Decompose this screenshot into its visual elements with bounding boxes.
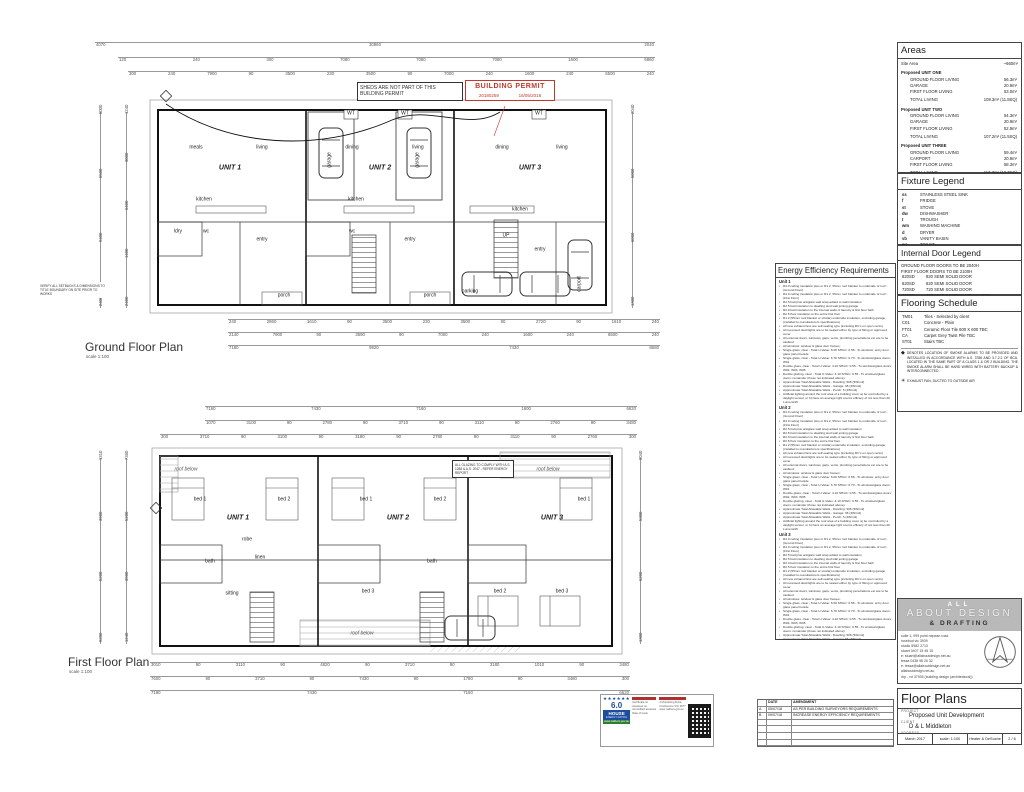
brand-line3: & DRAFTING bbox=[898, 620, 1021, 627]
energy-rating-certificate: ★★★★★★ 6.0 HOUSE ENERGY RATING www.nathe… bbox=[600, 694, 714, 747]
unit-three-rows: GROUND FLOOR LIVING59.4m²CARPORT20.9m²FI… bbox=[901, 150, 1018, 169]
first-dims-right: 3040530062001300 bbox=[640, 458, 641, 644]
building-permit-title: BUILDING PERMIT bbox=[469, 83, 551, 91]
table-row: FIRST FLOOR LIVING52.9m² bbox=[901, 126, 1018, 132]
areas-title: Areas bbox=[898, 43, 1021, 59]
list-item: Single glass, clear - Total U-Value: 6.7… bbox=[779, 356, 892, 364]
list-item: R4.0 ceiling insulation plus or R1.2, 55… bbox=[779, 537, 892, 545]
ground-dims-left-1: 5000550094002400 bbox=[100, 112, 101, 308]
list-item: R4.0 ceiling insulation plus or R1.2, 55… bbox=[779, 419, 892, 427]
flooring-schedule-title: Flooring Schedule bbox=[898, 296, 1021, 312]
amend-col-desc: AMENDMENT bbox=[792, 700, 893, 706]
unit-one-total-label: TOTAL LIVING bbox=[909, 97, 939, 103]
brand-block: ALL ABOUT DESIGN & DRAFTING suite 1, 999… bbox=[897, 598, 1022, 684]
list-item: Single glass, clear - Total U-Value: 6.7… bbox=[779, 609, 892, 617]
amendment-table: DATE AMENDMENT A05/07/18AS PER BUILDING … bbox=[757, 699, 894, 747]
ground-dims-right: 2040500060001300 bbox=[632, 112, 633, 308]
list-item: All recessed downlights are to be sealed… bbox=[779, 455, 892, 463]
ground-dims-top-2: 12024030070807080708016006860 bbox=[118, 57, 655, 58]
cert-col1-header bbox=[632, 697, 656, 700]
table-row: FIRST FLOOR LIVING53.0m² bbox=[901, 89, 1018, 95]
list-item: Single glass, clear - Total U-Value: 6.7… bbox=[779, 483, 892, 491]
table-row bbox=[758, 726, 893, 733]
ground-dims-bottom-3: 7180992074308680 bbox=[228, 345, 660, 346]
first-dims-top-1: 71607430716016006620 bbox=[205, 406, 637, 407]
brand-band: ALL ABOUT DESIGN & DRAFTING bbox=[898, 599, 1021, 631]
building-permit-number: 20180259 bbox=[479, 93, 499, 98]
first-dims-bottom-3: 7180743071606620 bbox=[150, 690, 630, 691]
building-permit-date: 16/05/2018 bbox=[519, 93, 542, 98]
first-floor-plan-drawing bbox=[150, 448, 622, 654]
glazing-note: ALL GLAZING TO COMPLY WITH A.S. 1288 & A… bbox=[452, 460, 514, 478]
door-legend-panel: Internal Door Legend GROUND FLOOR DOORS … bbox=[897, 245, 1022, 295]
unit-one-rows: GROUND FLOOR LIVING56.3m²GARAGE20.9m²FIR… bbox=[901, 77, 1018, 96]
first-dims-top-2: 10703100902780903710903110902760903480 bbox=[205, 420, 637, 421]
list-item: Double glazing, clear - Total U-Value: 4… bbox=[779, 625, 892, 633]
first-dims-top-3: 3003710903100903180902780903110902760300 bbox=[160, 434, 637, 435]
title-strip: March 2017 scale: 1:100 Heater & DeSoche… bbox=[897, 733, 1022, 745]
client-value: D & L Middleton bbox=[909, 724, 1018, 730]
building-permit-stamp: BUILDING PERMIT 20180259 16/05/2018 bbox=[465, 80, 555, 101]
exhaust-fan-icon: ✳ bbox=[901, 379, 905, 384]
table-row bbox=[758, 740, 893, 747]
first-floor-plan-title: First Floor Plan bbox=[68, 655, 149, 669]
energy-unit3-bullets: R4.0 ceiling insulation plus or R1.2, 55… bbox=[779, 537, 892, 640]
list-item: Date of issue bbox=[632, 712, 656, 716]
list-item: R4.0 ceiling insulation plus or R1.2, 55… bbox=[779, 410, 892, 418]
door-legend-title: Internal Door Legend bbox=[898, 246, 1021, 261]
ground-dims-left-2: 12403000640014002400 bbox=[126, 112, 127, 308]
sheet-date: March 2017 bbox=[898, 734, 933, 744]
energy-efficiency-panel: Energy Efficiency Requirements Unit 1 R4… bbox=[775, 263, 896, 640]
ground-dims-top-3: 3002407900903500230350090700024016002406… bbox=[128, 71, 655, 72]
list-item: R4.0 ceiling insulation plus or R1.2, 55… bbox=[779, 292, 892, 300]
list-item: Double glass, clear - Total U-Value: 4.1… bbox=[779, 617, 892, 625]
table-row bbox=[758, 733, 893, 740]
table-row: ST01Stairs TBC bbox=[901, 339, 1018, 345]
list-item: Single glass, clear - Total U-Value: 6.0… bbox=[779, 348, 892, 356]
ground-floor-plan-scale: scale 1:100 bbox=[86, 354, 109, 359]
table-row: B09/07/18INCREASE ENERGY EFFICIENCY REQU… bbox=[758, 713, 893, 720]
star-rating-value: 6.0 bbox=[603, 702, 630, 711]
list-item: All external doors, windows, gaps, vents… bbox=[779, 463, 892, 471]
amend-col-date: DATE bbox=[767, 700, 792, 706]
list-item: R1.2 (55mm roof blanket or similar) unde… bbox=[779, 569, 892, 577]
list-item: Approximate Total Allowable Watts - Gara… bbox=[779, 637, 892, 640]
smoke-alarm-note: DENOTES LOCATION OF SMOKE ALARMS TO BE P… bbox=[907, 351, 1018, 373]
table-row bbox=[758, 720, 893, 727]
ground-floor-plan-drawing bbox=[150, 90, 612, 313]
first-dims-bottom-1: 30109031109048209037109031801010903480 bbox=[150, 662, 630, 663]
list-item: Single glass, clear - Total U-Value: 6.0… bbox=[779, 475, 892, 483]
list-item: All external doors, windows, gaps, vents… bbox=[779, 336, 892, 344]
nathers-url: www.nathers.gov.au bbox=[603, 720, 630, 724]
list-item: R4.0 ceiling insulation plus or R1.2, 55… bbox=[779, 284, 892, 292]
unit-one-total-value: 109.3m² (11.8SQ) bbox=[983, 97, 1018, 103]
list-item: Single glass, clear - Total U-Value: 6.0… bbox=[779, 601, 892, 609]
energy-panel-title: Energy Efficiency Requirements bbox=[776, 264, 895, 278]
compass-logo-icon bbox=[982, 634, 1018, 670]
unit-two-total-value: 107.2m² (11.5SQ) bbox=[983, 134, 1018, 140]
first-floor-plan-scale: scale 1:100 bbox=[69, 669, 92, 674]
energy-unit1-bullets: R4.0 ceiling insulation plus or R1.2, 55… bbox=[779, 284, 892, 404]
first-dims-bottom-2: 7600903710907430901780903480300 bbox=[150, 676, 630, 677]
ground-dims-bottom-2: 2140790090359090700024016002406500240 bbox=[228, 332, 660, 333]
energy-unit2-bullets: R4.0 ceiling insulation plus or R1.2, 55… bbox=[779, 410, 892, 530]
site-area-value: ~660m² bbox=[1004, 61, 1018, 67]
list-item: All external doors, windows, gaps, vents… bbox=[779, 589, 892, 597]
areas-panel: Areas Site Area ~660m² Proposed UNIT ONE… bbox=[897, 42, 1022, 173]
list-item: R1.2 (55mm roof blanket or similar) unde… bbox=[779, 316, 892, 324]
list-item: Double glass, clear - Total U-Value: 4.1… bbox=[779, 364, 892, 372]
cert-col2-header bbox=[659, 697, 685, 700]
brand-line2: ABOUT DESIGN bbox=[898, 608, 1021, 619]
smoke-alarm-icon: ◆ bbox=[901, 351, 905, 373]
fixture-legend-panel: Fixture Legend ssSTAINLESS STEEL SINKfFR… bbox=[897, 173, 1022, 245]
cert-col1-lines: Certificate no.Assessor no.Accredited as… bbox=[632, 701, 656, 716]
cert-col2-lines: 2 Mundaring Drive,Cranbourne VIC 3977www… bbox=[659, 701, 685, 712]
list-item: Double glazing, clear - Total U-Value: 4… bbox=[779, 499, 892, 507]
ground-dims-top-1: 4070309602040 bbox=[95, 42, 655, 43]
qr-code bbox=[688, 704, 711, 738]
table-row: FIRST FLOOR LIVING58.3m² bbox=[901, 162, 1018, 168]
sheet-scale: scale: 1:100 bbox=[933, 734, 968, 744]
drawing-sheet: UNIT 1mealslivingkitchenldrywcentryporch… bbox=[0, 0, 1024, 792]
amend-col-index bbox=[758, 700, 767, 706]
boundary-note: VERIFY ALL SETBACKS & DIMENSIONS TO TITL… bbox=[38, 282, 112, 298]
list-item: R1.2 (55mm roof blanket or similar) unde… bbox=[779, 443, 892, 451]
first-dims-left-1: 1310390052009200 bbox=[100, 458, 101, 644]
first-dims-left-2: 7360520039001240 bbox=[126, 458, 127, 644]
site-area-label: Site Area bbox=[901, 61, 918, 67]
flooring-rows: TM01Tiles - Selected by clientC01Concret… bbox=[901, 314, 1018, 345]
fixture-legend-title: Fixture Legend bbox=[898, 174, 1021, 190]
brand-contact-lines: suite 1, 999 point nepean roadrosebud vi… bbox=[901, 634, 982, 680]
project-value: Proposed Unit Development bbox=[909, 713, 1018, 719]
unit-two-total-label: TOTAL LIVING bbox=[909, 134, 939, 140]
list-item: Double glass, clear - Total U-Value: 4.1… bbox=[779, 491, 892, 499]
list-item: All recessed downlights are to be sealed… bbox=[779, 328, 892, 336]
list-item: R4.0 ceiling insulation plus or R1.2, 55… bbox=[779, 545, 892, 553]
list-item: All recessed downlights are to be sealed… bbox=[779, 581, 892, 589]
flooring-schedule-panel: Flooring Schedule TM01Tiles - Selected b… bbox=[897, 295, 1022, 412]
ground-dims-bottom-1: 240286016109035002303500902720901610240 bbox=[228, 319, 660, 320]
list-item: Artificial lighting around the roof area… bbox=[779, 519, 892, 531]
unit-two-rows: GROUND FLOOR LIVING54.3m²GARAGE20.9m²FIR… bbox=[901, 113, 1018, 132]
list-item: www.nathers.gov.au bbox=[659, 708, 685, 712]
list-item: rbp - vd 37935 (building design (archite… bbox=[901, 675, 982, 680]
sheet-number: 2 / 6 bbox=[1003, 734, 1021, 744]
table-row: A05/07/18AS PER BUILDING SURVEYORS REQUI… bbox=[758, 707, 893, 714]
list-item: Double glazing, clear - Total U-Value: 4… bbox=[779, 372, 892, 380]
sheds-permit-note: SHEDS ARE NOT PART OF THIS BUILDING PERM… bbox=[357, 82, 463, 101]
sheet-section-title: Floor Plans bbox=[898, 689, 1021, 709]
sheet-drawn-by: Heater & DeSoche bbox=[968, 734, 1003, 744]
list-item: Artificial lighting around the roof area… bbox=[779, 392, 892, 404]
exhaust-fan-note: EXHAUST FAN, DUCTED TO OUTSIDE AIR bbox=[907, 379, 974, 384]
amendment-rows: A05/07/18AS PER BUILDING SURVEYORS REQUI… bbox=[758, 707, 893, 747]
ground-floor-plan-title: Ground Floor Plan bbox=[85, 340, 183, 354]
